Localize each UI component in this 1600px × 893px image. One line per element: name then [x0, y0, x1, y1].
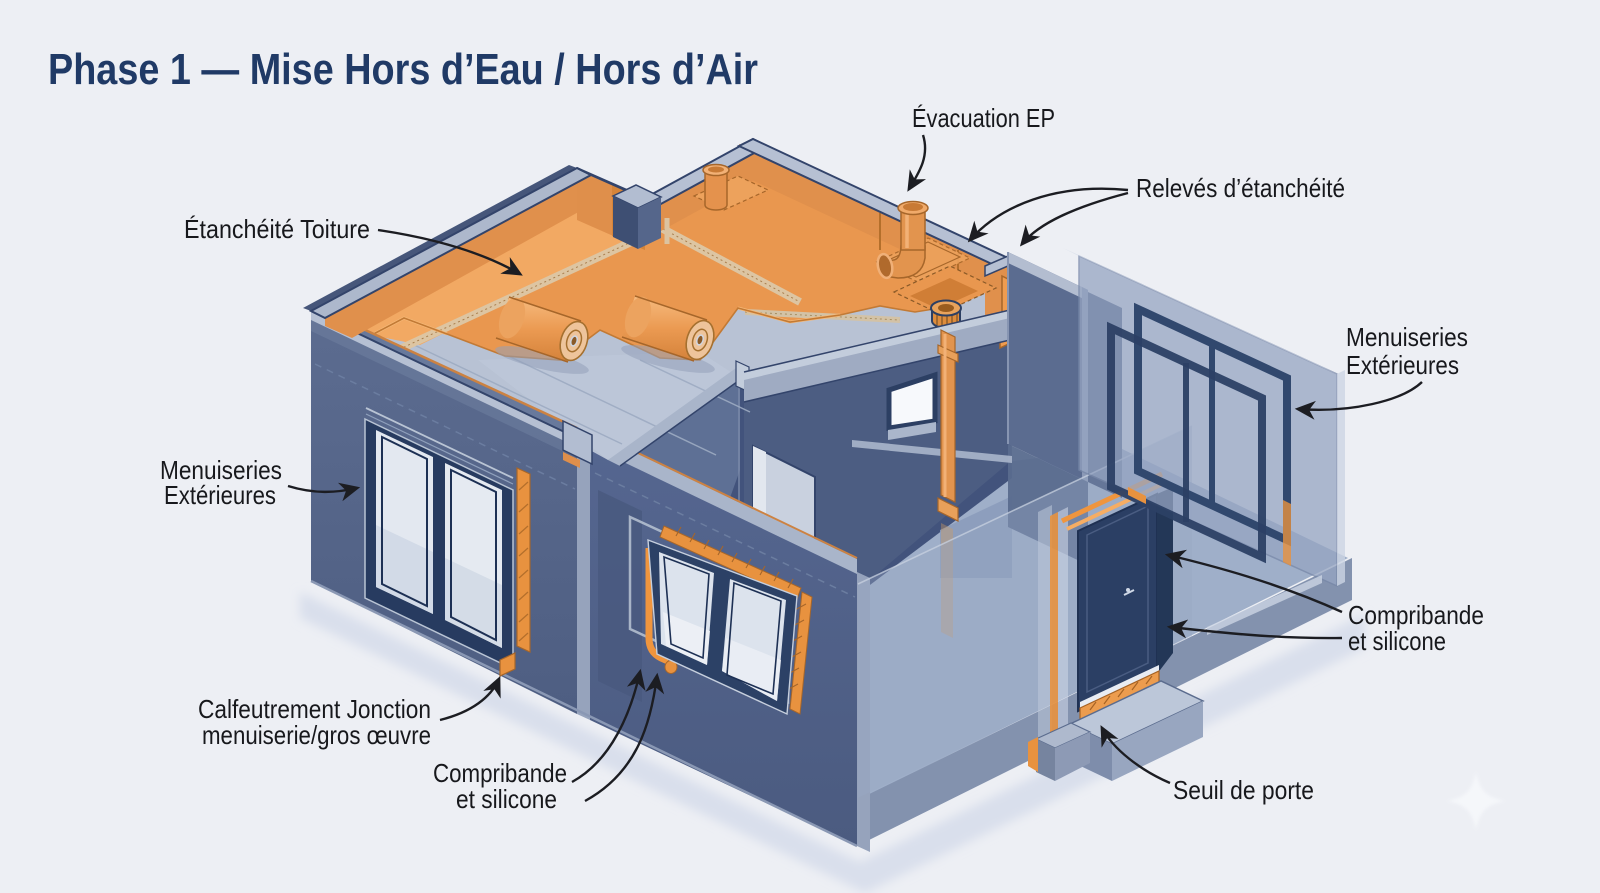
svg-text:et silicone: et silicone: [1348, 626, 1446, 656]
svg-text:Phase 1 — Mise Hors d’Eau / Ho: Phase 1 — Mise Hors d’Eau / Hors d’Air: [48, 45, 758, 94]
svg-text:Extérieures: Extérieures: [164, 480, 276, 510]
svg-text:Évacuation EP: Évacuation EP: [912, 103, 1055, 133]
svg-text:menuiserie/gros œuvre: menuiserie/gros œuvre: [202, 720, 431, 750]
svg-text:Extérieures: Extérieures: [1346, 350, 1459, 380]
svg-text:Menuiseries: Menuiseries: [1346, 322, 1468, 352]
svg-text:Relevés d’étanchéité: Relevés d’étanchéité: [1136, 173, 1345, 203]
svg-text:Étanchéité Toiture: Étanchéité Toiture: [184, 214, 370, 244]
svg-text:Seuil de porte: Seuil de porte: [1173, 775, 1314, 805]
svg-text:et silicone: et silicone: [456, 784, 557, 814]
